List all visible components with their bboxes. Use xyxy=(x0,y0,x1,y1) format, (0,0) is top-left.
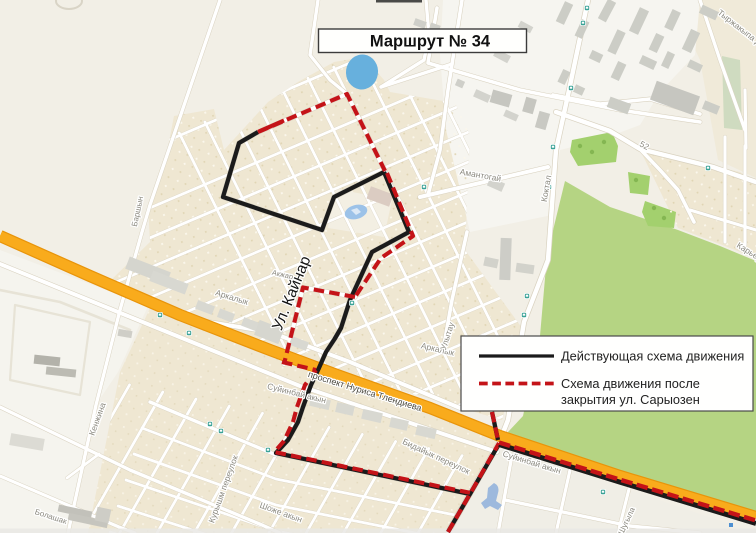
svg-text:Схема движения после: Схема движения после xyxy=(561,376,700,391)
svg-text:закрытия ул. Сарыозен: закрытия ул. Сарыозен xyxy=(561,392,700,407)
svg-text:Маршрут № 34: Маршрут № 34 xyxy=(370,33,491,51)
svg-text:Действующая схема движения: Действующая схема движения xyxy=(561,349,744,364)
